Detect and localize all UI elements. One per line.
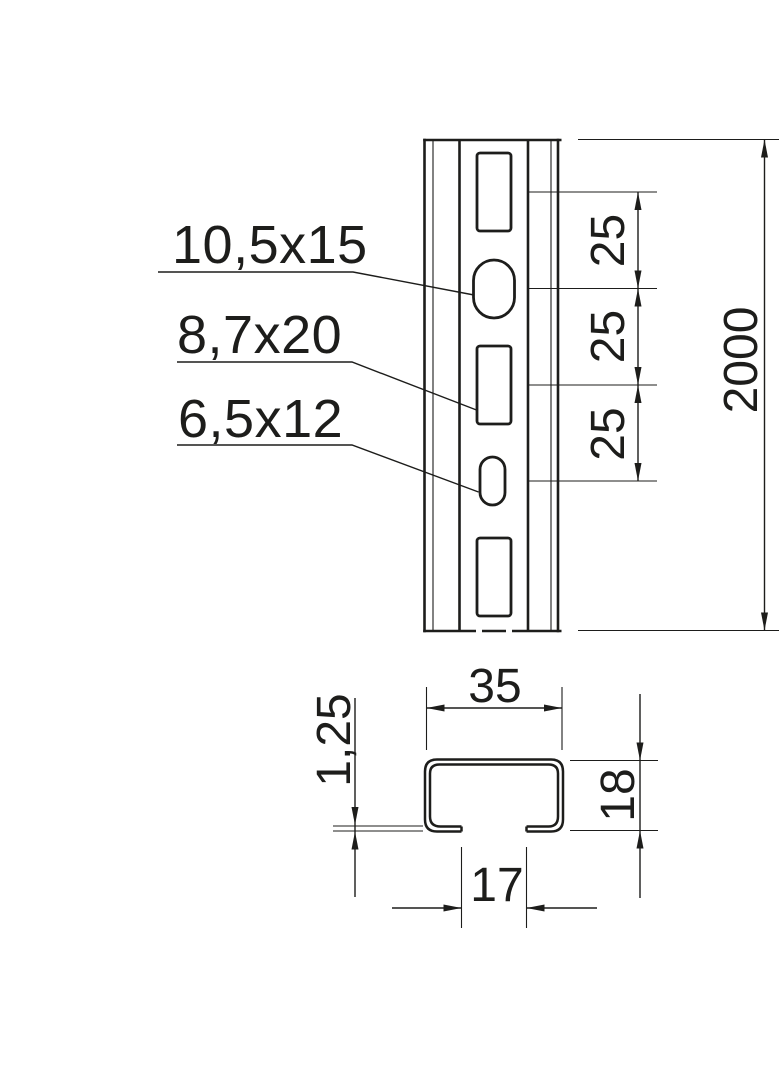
rail-cross-section <box>425 760 563 832</box>
arrowhead-left <box>527 905 545 912</box>
small-oval-hole <box>480 457 505 505</box>
section-opening-dimension: 17 <box>392 847 597 928</box>
leader-line-oval-hole <box>158 272 474 295</box>
section-width-dimension: 35 <box>427 660 563 750</box>
rect-slot-hole-1 <box>477 153 511 231</box>
arrowhead-up <box>635 289 642 307</box>
section-thickness-dimension: 1,25 <box>308 693 423 897</box>
hole-size-label-rect-slot: 8,7x20 <box>177 305 342 365</box>
thickness-dim-label: 1,25 <box>308 693 361 786</box>
rect-slot-hole-2 <box>477 346 511 424</box>
hole-size-label-oval: 10,5x15 <box>172 215 368 275</box>
arrowhead-down <box>635 367 642 385</box>
arrowhead-down <box>352 807 359 825</box>
length-dim-label: 2000 <box>715 307 768 414</box>
hole-size-label-small-oval: 6,5x12 <box>178 389 343 449</box>
arrowhead-right <box>544 705 562 712</box>
oval-hole <box>474 260 515 318</box>
section-outer-contour <box>425 760 563 832</box>
arrowhead-down <box>635 271 642 289</box>
technical-drawing-page: 10,5x15 8,7x20 6,5x12 25 25 25 <box>0 0 784 1066</box>
arrowhead-down <box>637 743 644 761</box>
arrowhead-down <box>761 613 768 631</box>
section-inner-contour <box>430 765 558 827</box>
spacing-dim-label-2: 25 <box>582 310 635 363</box>
spacing-dim-label-1: 25 <box>582 214 635 267</box>
arrowhead-up <box>637 831 644 849</box>
opening-dim-label: 17 <box>470 859 523 912</box>
section-height-dimension: 18 <box>570 694 658 898</box>
arrowhead-right <box>444 905 462 912</box>
arrowhead-up <box>635 385 642 403</box>
hole-spacing-dimensions: 25 25 25 <box>529 192 657 481</box>
arrowhead-up <box>635 192 642 210</box>
profile-rail-dimension-drawing: 10,5x15 8,7x20 6,5x12 25 25 25 <box>0 0 784 1066</box>
height-dim-label: 18 <box>592 768 645 821</box>
arrowhead-up <box>761 140 768 158</box>
width-dim-label: 35 <box>468 660 521 713</box>
hole-size-callouts: 10,5x15 8,7x20 6,5x12 <box>158 215 479 492</box>
rect-slot-hole-3 <box>477 538 511 616</box>
arrowhead-up <box>352 832 359 850</box>
arrowhead-down <box>635 463 642 481</box>
spacing-dim-label-3: 25 <box>582 407 635 460</box>
arrowhead-left <box>427 705 445 712</box>
